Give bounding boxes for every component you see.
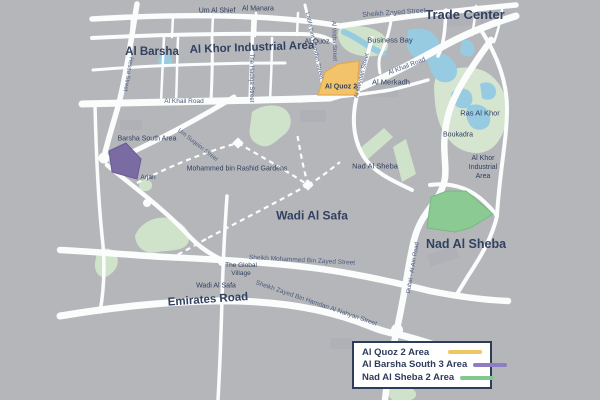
legend-swatch-al-quoz-2 <box>448 350 482 354</box>
legend-swatch-al-barsha-south-3 <box>473 363 507 367</box>
legend-item-al-barsha-south-3: Al Barsha South 3 Area <box>362 359 482 370</box>
legend-item-nad-al-sheba-2: Nad Al Sheba 2 Area <box>362 372 482 383</box>
legend: Al Quoz 2 Area Al Barsha South 3 Area Na… <box>352 341 492 389</box>
legend-label-nad-al-sheba-2: Nad Al Sheba 2 Area <box>362 372 454 383</box>
map-canvas[interactable]: Um Al Shief Al Manara Sheikh Zayed Stree… <box>0 0 600 400</box>
legend-item-al-quoz-2: Al Quoz 2 Area <box>362 347 482 358</box>
legend-swatch-nad-al-sheba-2 <box>460 376 494 380</box>
area-al-quoz-2 <box>318 61 359 95</box>
legend-label-al-barsha-south-3: Al Barsha South 3 Area <box>362 359 467 370</box>
legend-label-al-quoz-2: Al Quoz 2 Area <box>362 347 429 358</box>
map-graphic <box>0 0 600 400</box>
area-nad-al-sheba-2 <box>427 191 493 232</box>
